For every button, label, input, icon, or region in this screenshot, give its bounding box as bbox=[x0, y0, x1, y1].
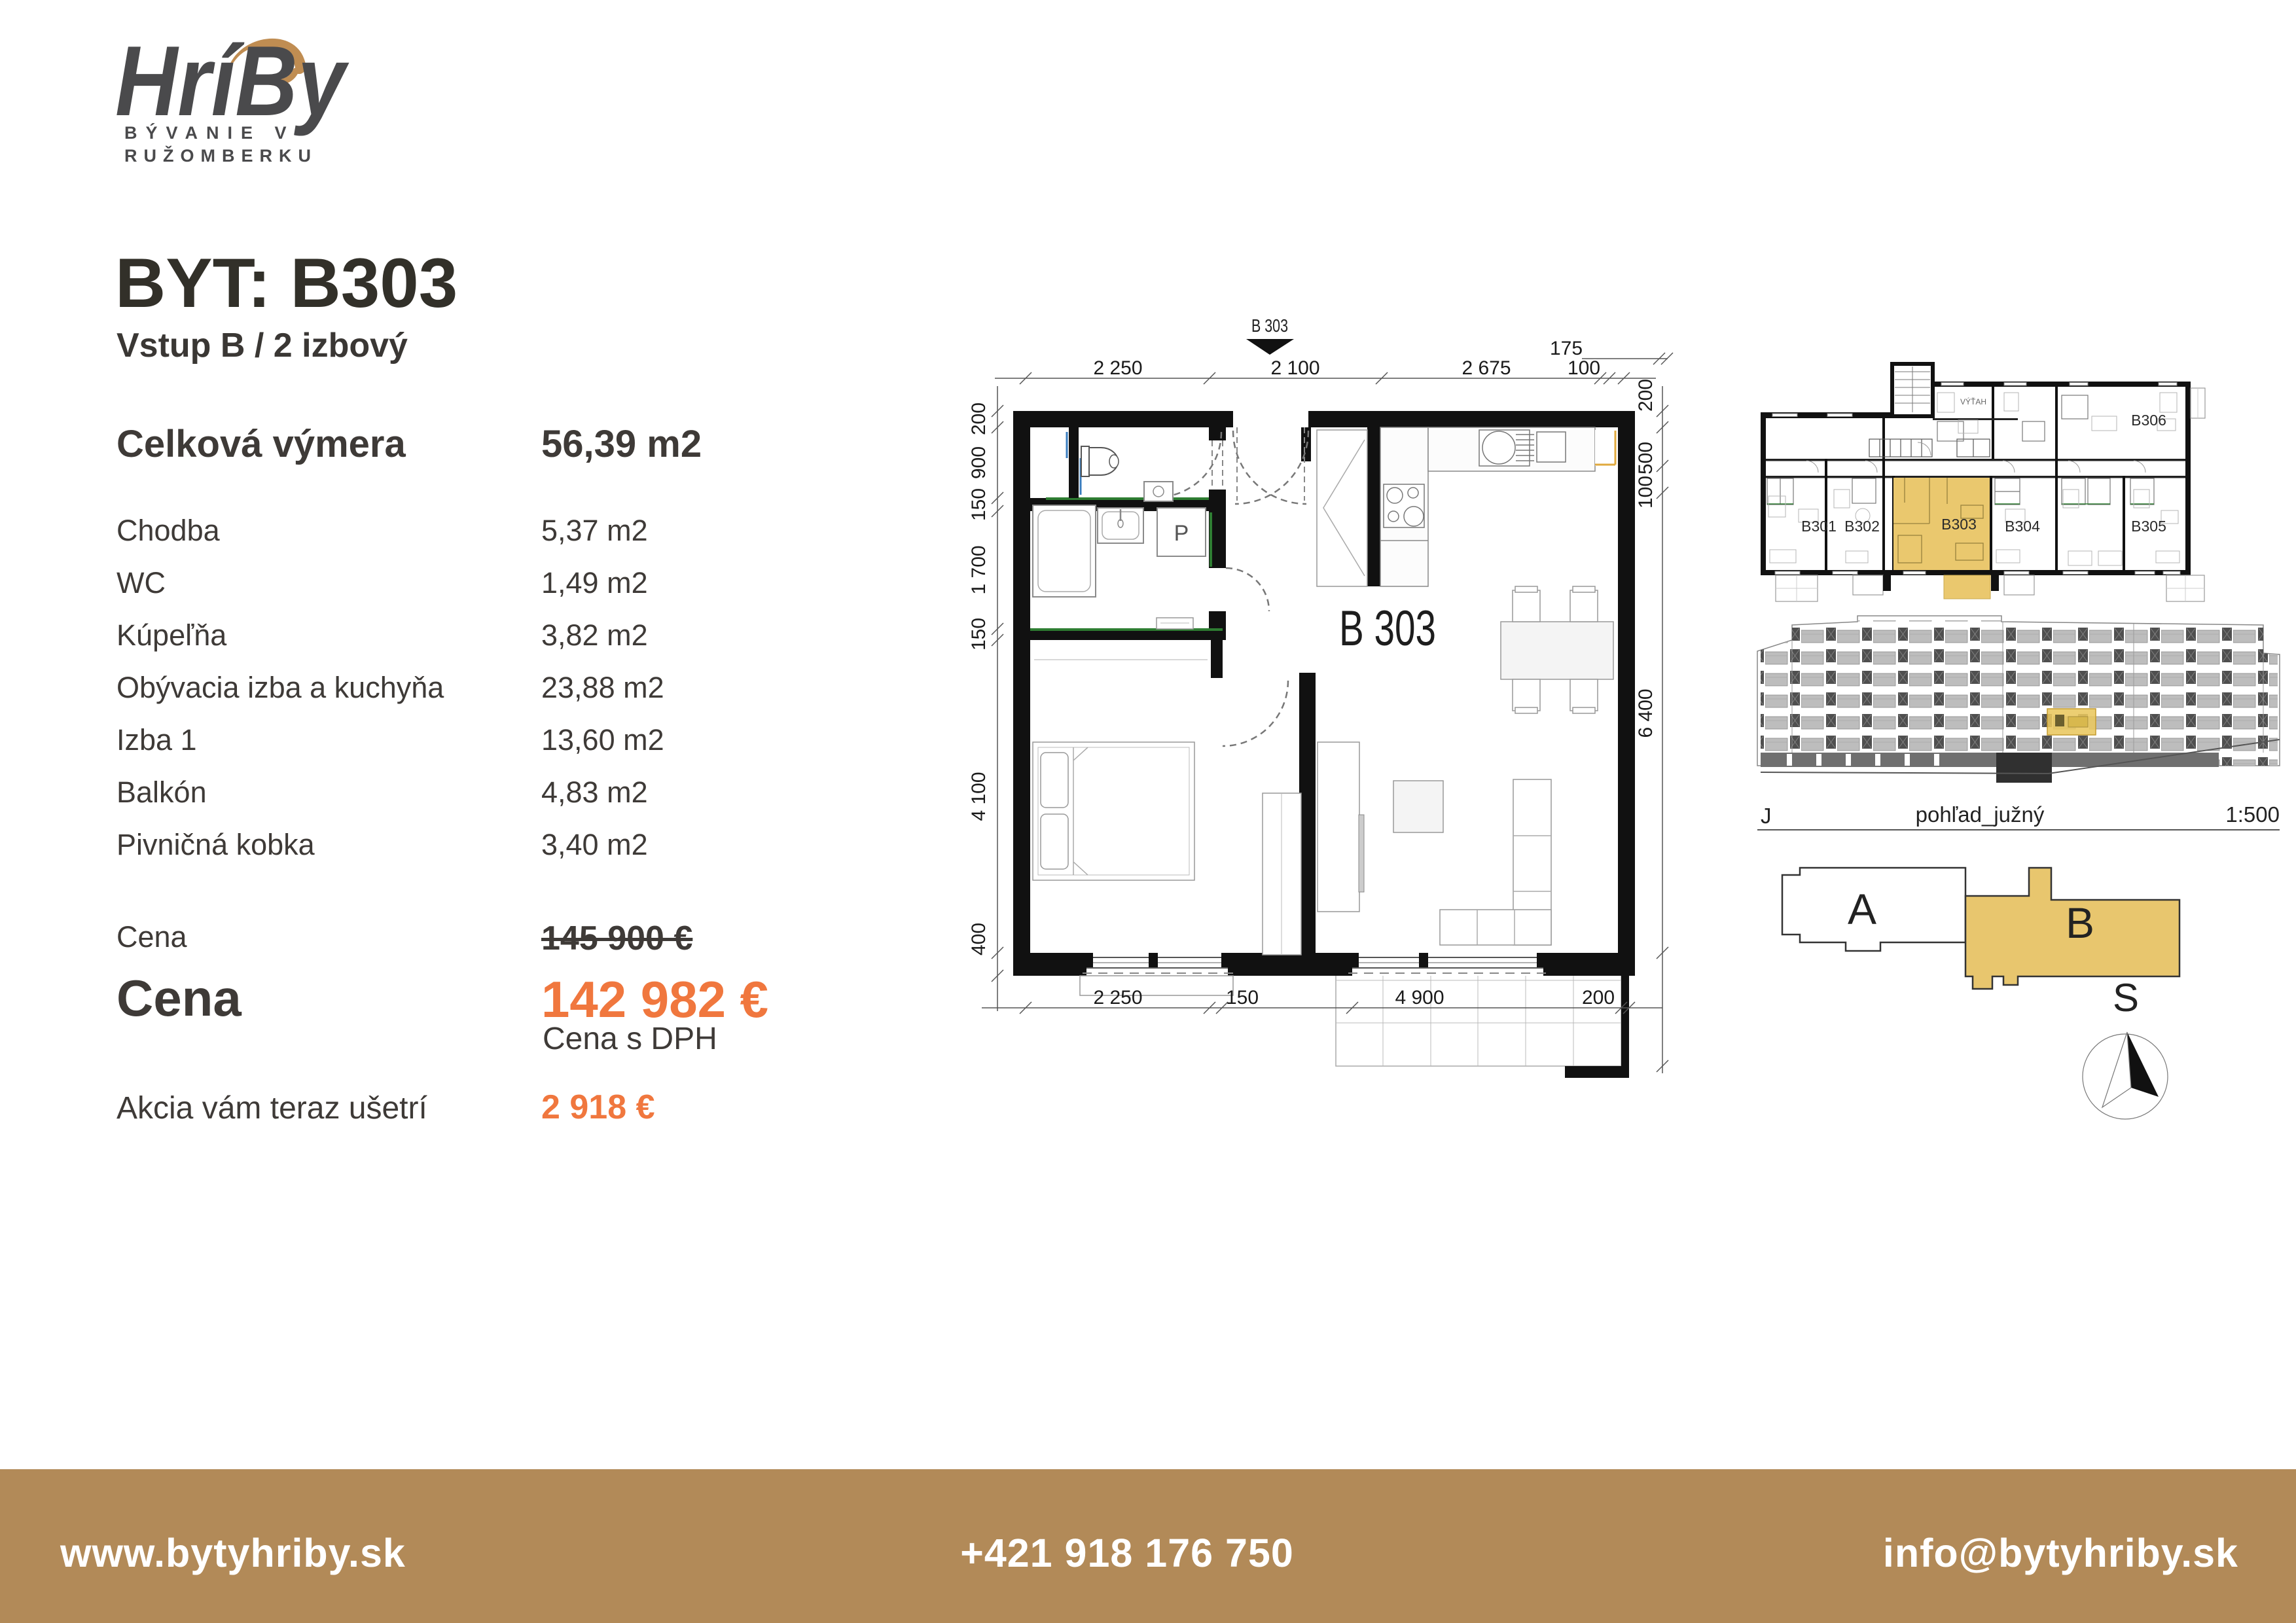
svg-text:B302: B302 bbox=[1844, 518, 1880, 535]
svg-text:200: 200 bbox=[968, 402, 990, 435]
svg-text:100: 100 bbox=[1635, 476, 1657, 508]
svg-text:VÝŤAH: VÝŤAH bbox=[1960, 397, 1986, 406]
svg-text:2 250: 2 250 bbox=[1093, 987, 1142, 1008]
svg-text:B306: B306 bbox=[2131, 412, 2166, 429]
svg-text:2 100: 2 100 bbox=[1270, 357, 1319, 379]
svg-text:500: 500 bbox=[1635, 442, 1657, 474]
svg-text:4 900: 4 900 bbox=[1395, 987, 1444, 1008]
svg-text:4 100: 4 100 bbox=[968, 772, 990, 821]
svg-text:400: 400 bbox=[968, 923, 990, 955]
svg-text:2 250: 2 250 bbox=[1093, 357, 1142, 379]
svg-text:150: 150 bbox=[968, 618, 990, 651]
svg-text:2 675: 2 675 bbox=[1462, 357, 1511, 379]
svg-text:B: B bbox=[2066, 899, 2094, 947]
svg-text:100: 100 bbox=[1568, 357, 1600, 379]
svg-text:1:500: 1:500 bbox=[2225, 802, 2280, 827]
svg-text:pohľad_južný: pohľad_južný bbox=[1916, 802, 2045, 827]
svg-text:1 700: 1 700 bbox=[968, 545, 990, 594]
svg-text:150: 150 bbox=[968, 488, 990, 521]
svg-text:6 400: 6 400 bbox=[1635, 688, 1657, 738]
svg-text:P: P bbox=[1174, 521, 1189, 546]
svg-text:A: A bbox=[1848, 885, 1876, 933]
svg-text:150: 150 bbox=[1226, 987, 1259, 1008]
svg-text:200: 200 bbox=[1635, 379, 1657, 412]
svg-text:200: 200 bbox=[1582, 987, 1615, 1008]
svg-text:B 303: B 303 bbox=[1339, 601, 1436, 656]
svg-text:900: 900 bbox=[968, 446, 990, 479]
svg-text:J: J bbox=[1761, 804, 1772, 828]
svg-text:B303: B303 bbox=[1941, 516, 1977, 533]
svg-text:S: S bbox=[2113, 976, 2139, 1020]
svg-text:B301: B301 bbox=[1801, 518, 1837, 535]
svg-text:B304: B304 bbox=[2005, 518, 2040, 535]
svg-text:B 303: B 303 bbox=[1251, 315, 1288, 336]
svg-text:175: 175 bbox=[1550, 338, 1583, 359]
svg-text:B305: B305 bbox=[2131, 518, 2166, 535]
